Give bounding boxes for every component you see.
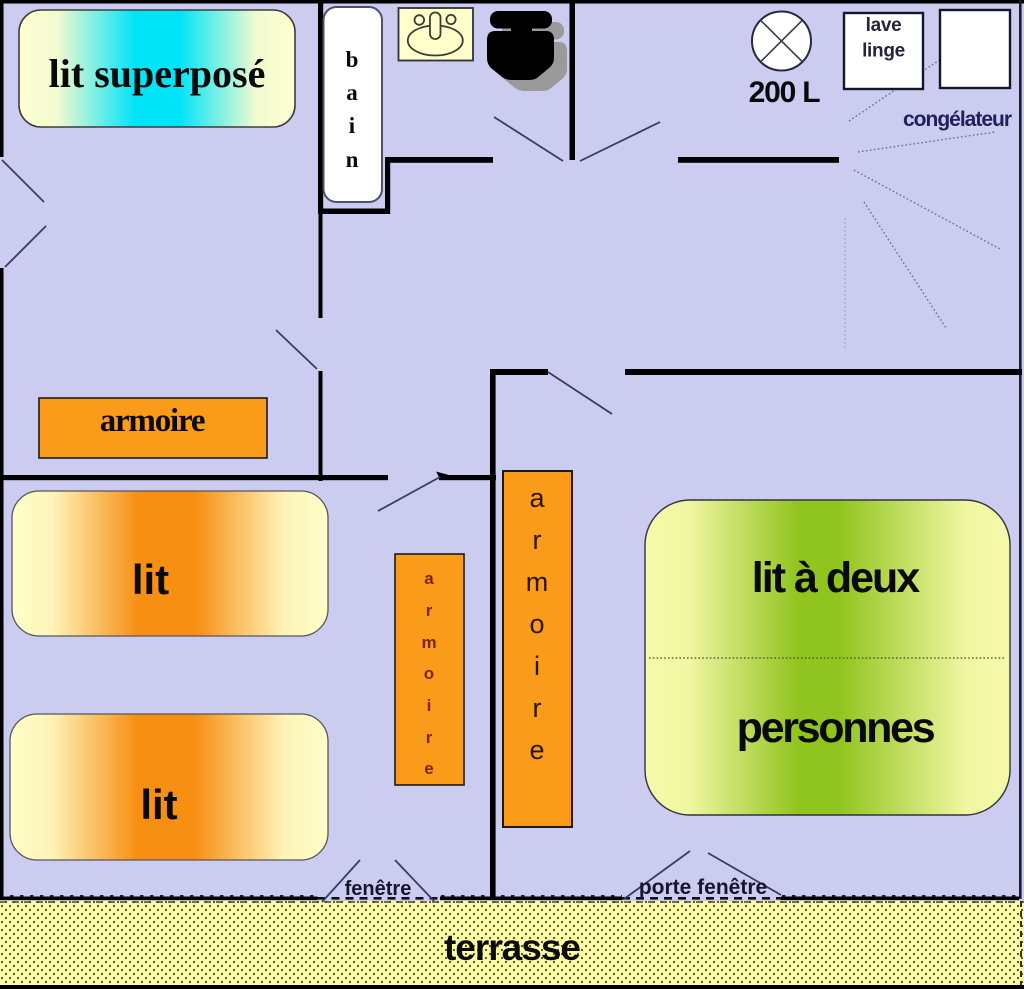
svg-text:i: i <box>534 651 540 681</box>
svg-text:lit: lit <box>140 781 177 828</box>
svg-text:personnes: personnes <box>737 704 935 752</box>
svg-text:r: r <box>533 693 542 723</box>
svg-text:r: r <box>426 728 433 747</box>
svg-text:a: a <box>529 483 545 513</box>
svg-text:r: r <box>426 601 433 620</box>
svg-text:e: e <box>529 735 544 765</box>
svg-text:a: a <box>346 80 358 105</box>
svg-text:i: i <box>427 696 432 715</box>
svg-text:lit superposé: lit superposé <box>49 51 266 96</box>
svg-text:i: i <box>349 113 356 138</box>
svg-text:e: e <box>424 759 433 778</box>
svg-text:n: n <box>346 147 359 172</box>
svg-text:lave: lave <box>866 15 902 36</box>
svg-text:m: m <box>421 633 436 652</box>
svg-text:r: r <box>533 525 542 555</box>
svg-text:lit: lit <box>132 556 169 603</box>
svg-text:a: a <box>424 569 434 588</box>
svg-text:fenêtre: fenêtre <box>345 878 412 900</box>
svg-text:porte fenêtre: porte fenêtre <box>639 876 767 899</box>
svg-text:lit à deux: lit à deux <box>752 554 920 602</box>
svg-text:m: m <box>526 567 549 597</box>
svg-text:congélateur: congélateur <box>903 108 1012 131</box>
svg-text:terrasse: terrasse <box>444 927 580 968</box>
svg-text:200 L: 200 L <box>749 76 821 109</box>
svg-text:b: b <box>346 47 359 72</box>
svg-text:o: o <box>529 609 544 639</box>
svg-text:o: o <box>424 664 434 683</box>
svg-text:armoire: armoire <box>100 403 205 439</box>
svg-text:linge: linge <box>862 41 905 62</box>
